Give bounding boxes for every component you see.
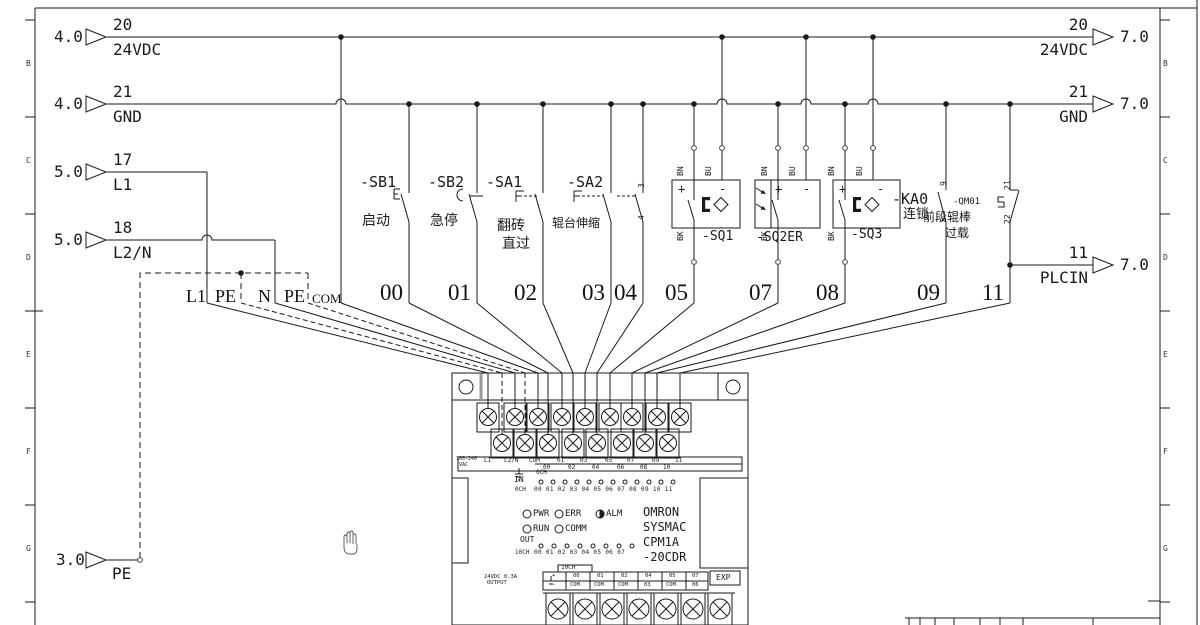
- channel-num-04: 04: [599, 281, 637, 304]
- plc-input-terminals: [477, 403, 691, 458]
- channel-num-07: 07: [728, 281, 772, 304]
- channel-num-08: 08: [795, 281, 839, 304]
- plc-in-term-11: 11: [675, 458, 682, 464]
- plc-in-term-l1: L1: [484, 458, 491, 464]
- device-desc2-sa1: 直过: [502, 237, 530, 251]
- plc-in-led-nums: 00 01 02 03 04 05 06 07 08 09 10 11: [534, 487, 673, 493]
- polarity-plus-sq1: +: [678, 183, 685, 195]
- plc-in-term-com: COM: [529, 458, 540, 464]
- schematic-linework: [0, 0, 1200, 625]
- plc-in-ch-label: 0CH: [536, 470, 547, 476]
- device-desc-sa2: 辊台伸缩: [552, 217, 600, 229]
- ref-right-page-24vdc: 7.0: [1120, 29, 1149, 45]
- ref-right-wire-plcin: 11: [1030, 245, 1088, 261]
- channel-num-00: 00: [359, 281, 403, 304]
- plc-in-term-09: 09: [652, 458, 659, 464]
- plc-brand-line4: -20CDR: [643, 551, 686, 563]
- plc-out-term-02: 02: [621, 574, 628, 580]
- device-tag-sq1: -SQ1: [702, 230, 733, 243]
- wire-label-pe1: PE: [215, 287, 236, 305]
- channel-num-11: 11: [960, 281, 1004, 304]
- plc-output-terminals: [546, 593, 732, 625]
- channel-num-09: 09: [896, 281, 940, 304]
- zone-letter-right-g: G: [1163, 545, 1168, 553]
- plc-psu-output: OUTPUT: [487, 581, 507, 587]
- plc-out-term-01: 01: [597, 574, 604, 580]
- plc-out-label: OUT: [520, 536, 534, 544]
- plc-out-term-00: 00: [573, 574, 580, 580]
- device-tag-sa2: -SA2: [567, 175, 603, 190]
- plc-in-term-06: 06: [617, 465, 624, 471]
- plc-in-term-07: 07: [627, 458, 634, 464]
- zone-letter-left-c: C: [26, 157, 31, 165]
- plc-out-term-06: 06: [692, 583, 699, 589]
- ref-right-name-24vdc: 24VDC: [1030, 42, 1088, 58]
- ref-right-name-gnd: GND: [1030, 109, 1088, 125]
- wire-label-l1: L1: [186, 287, 206, 305]
- zone-letter-left-e: E: [26, 351, 31, 359]
- ref-left-page-l2n: 5.0: [54, 232, 83, 248]
- zone-letter-right-c: C: [1163, 157, 1168, 165]
- ref-left-name-gnd: GND: [113, 109, 142, 125]
- polarity-plus-sq3: +: [839, 183, 846, 195]
- ref-left-name-l1: L1: [113, 177, 132, 193]
- wire-label-pe2: PE: [284, 287, 305, 305]
- plc-in-term-05: 05: [605, 458, 612, 464]
- hand-cursor-icon: [344, 531, 357, 554]
- ref-left-wire-l2n: 18: [113, 220, 132, 236]
- wire-label-com: COM: [312, 292, 342, 305]
- plc-led-pwr: PWR: [533, 510, 549, 519]
- plc-in-term-l2n: L2/N: [504, 458, 518, 464]
- ref-left-page-pe: 3.0: [56, 552, 85, 568]
- fan-wires: [207, 303, 1010, 434]
- ref-left-name-pe: PE: [112, 566, 131, 582]
- plc-led-alm: ALM: [606, 510, 622, 519]
- ref-left-page-gnd: 4.0: [54, 96, 83, 112]
- zone-letter-left-b: B: [26, 60, 31, 68]
- plc-in-label: IN: [514, 476, 524, 484]
- junction-dots: [239, 35, 1013, 276]
- device-tag-sq3: -SQ3: [851, 228, 882, 241]
- device-desc2-qm01: 过载: [945, 227, 969, 239]
- zone-letter-right-b: B: [1163, 60, 1168, 68]
- plc-out-term-07: 07: [692, 574, 699, 580]
- zone-letter-left-d: D: [26, 254, 31, 262]
- plc-out-led-nums: 00 01 02 03 04 05 06 07: [534, 550, 625, 556]
- ref-right-wire-24vdc: 20: [1030, 17, 1088, 33]
- ref-left-wire-24vdc: 20: [113, 17, 132, 33]
- plc-brand-line1: OMRON: [643, 506, 679, 518]
- plc-in-term-02: 02: [568, 465, 575, 471]
- plc-out-term-04: 04: [645, 574, 652, 580]
- polarity-minus-sq2er: -: [803, 183, 810, 195]
- plc-brand-line3: CPM1A: [643, 536, 679, 548]
- switch-contacts: [394, 104, 1093, 303]
- zone-letter-left-f: F: [26, 448, 31, 456]
- zone-letter-left-g: G: [26, 545, 31, 553]
- terminal-num-qm01-top: 21: [1004, 180, 1012, 190]
- ref-right-page-plcin: 7.0: [1120, 257, 1149, 273]
- plc-out-ch-label: 10CH: [515, 550, 529, 556]
- device-desc-sa1: 翻砖: [497, 219, 525, 233]
- polarity-minus-sq3: -: [877, 183, 884, 195]
- plc-brand-line2: SYSMAC: [643, 521, 686, 533]
- plc-led-err: ERR: [565, 510, 581, 519]
- ref-left-name-24vdc: 24VDC: [113, 42, 161, 58]
- plc-out-term-com1: COM: [570, 583, 580, 589]
- connector-points: [138, 146, 876, 563]
- plc-exp-label: EXP: [716, 574, 730, 582]
- terminal-num-qm01-bottom: 22: [1004, 214, 1012, 224]
- plc-vac-unit: VAC: [459, 463, 468, 468]
- plc-in-term-03: 03: [580, 458, 587, 464]
- zone-letter-right-f: F: [1163, 448, 1168, 456]
- plc-out-term-05: 05: [669, 574, 676, 580]
- drawing-frame: [25, 0, 1197, 625]
- channel-num-02: 02: [493, 281, 537, 304]
- ref-left-wire-gnd: 21: [113, 84, 132, 100]
- ref-right-page-gnd: 7.0: [1120, 96, 1149, 112]
- ref-left-page-l1: 5.0: [54, 164, 83, 180]
- device-tag-ka0: -KA0: [892, 192, 928, 207]
- zone-letter-right-e: E: [1163, 351, 1168, 359]
- plc-out-term-plus: +: [552, 574, 555, 580]
- plc-out-term-com4: COM: [666, 583, 676, 589]
- plc-in-term-04: 04: [592, 465, 599, 471]
- pin-label-sq3-bn: BN: [828, 166, 836, 176]
- device-tag-sb1: -SB1: [360, 175, 396, 190]
- polarity-plus-sq2er: +: [775, 183, 782, 195]
- ref-right-name-plcin: PLCIN: [1030, 270, 1088, 286]
- pin-label-sq2er-bn: BN: [761, 166, 769, 176]
- device-desc-qm01: 前段辊棒: [923, 211, 971, 223]
- zone-letter-right-d: D: [1163, 254, 1168, 262]
- pin-label-sq1-bu: BU: [705, 166, 713, 176]
- plc-led-run: RUN: [533, 525, 549, 534]
- device-tag-qm01: -QM01: [953, 198, 980, 207]
- pin-label-sq1-bk: BK: [677, 231, 685, 241]
- plc-out-term-com2: COM: [594, 583, 604, 589]
- ref-left-wire-l1: 17: [113, 152, 132, 168]
- plc-out-term-minus: -: [552, 583, 555, 589]
- ref-left-page-24vdc: 4.0: [54, 29, 83, 45]
- ref-right-wire-gnd: 21: [1030, 84, 1088, 100]
- plc-out-ch2-label: 10CH: [561, 565, 575, 571]
- device-tag-sb2: -SB2: [428, 175, 464, 190]
- wire-label-n: N: [258, 287, 271, 305]
- pin-label-sq3-bu: BU: [856, 166, 864, 176]
- terminal-num-sa2-bottom: 4: [638, 215, 646, 220]
- device-desc-sb2: 急停: [430, 214, 458, 228]
- plc-in-term-01: 01: [557, 458, 564, 464]
- schematic-canvas[interactable]: 4.0 20 24VDC 4.0 21 GND 5.0 17 L1 5.0 18…: [0, 0, 1200, 625]
- pin-label-sq1-bn: BN: [677, 166, 685, 176]
- channel-num-01: 01: [427, 281, 471, 304]
- terminal-num-ka0-top: 9: [940, 181, 948, 186]
- plc-in-term-10: 10: [663, 465, 670, 471]
- pin-label-sq2er-bu: BU: [789, 166, 797, 176]
- pin-label-sq2er-bk: BK: [761, 231, 769, 241]
- plc-out-term-com3: COM: [618, 583, 628, 589]
- title-block: [905, 601, 1160, 625]
- device-tag-sa1: -SA1: [486, 175, 522, 190]
- polarity-minus-sq1: -: [719, 183, 726, 195]
- plc-out-term-03: 03: [644, 583, 651, 589]
- pin-label-sq3-bk: BK: [828, 231, 836, 241]
- channel-num-05: 05: [644, 281, 688, 304]
- terminal-num-sa2-top: 3: [638, 183, 646, 188]
- ref-left-name-l2n: L2/N: [113, 245, 152, 261]
- device-desc-sb1: 启动: [362, 214, 390, 228]
- plc-led-comm: COMM: [565, 525, 587, 534]
- plc-in-led-ch: 0CH: [515, 487, 526, 493]
- plc-in-term-08: 08: [640, 465, 647, 471]
